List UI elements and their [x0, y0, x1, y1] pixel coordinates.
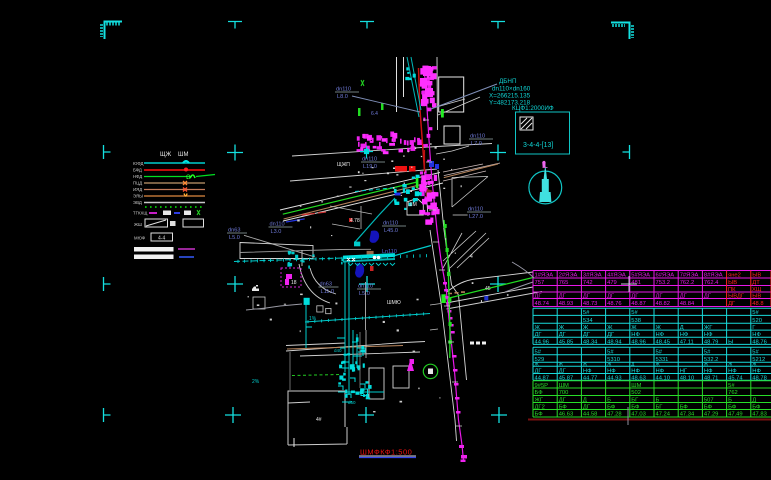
svg-text:2#ЯЭA: 2#ЯЭA [559, 273, 578, 279]
svg-text:18: 18 [291, 280, 297, 286]
svg-text:Ln110: Ln110 [382, 249, 397, 255]
svg-text:3-4-4-[13]: 3-4-4-[13] [523, 142, 553, 149]
svg-text:ДГ: ДГ [559, 332, 567, 338]
svg-text:48.74: 48.74 [535, 301, 550, 307]
svg-text:48.73: 48.73 [583, 301, 598, 307]
svg-text:L5.0: L5.0 [359, 291, 370, 297]
svg-text:Ж: Ж [607, 325, 613, 331]
svg-text:ЭВД: ЭВД [133, 200, 142, 205]
svg-text:762.2: 762.2 [680, 280, 695, 286]
svg-text:БФ: БФ [559, 404, 568, 410]
svg-text:X=266215.135: X=266215.135 [489, 93, 531, 100]
svg-text:4#ЯЭA: 4#ЯЭA [607, 273, 626, 279]
svg-text:48.94: 48.94 [607, 339, 622, 345]
svg-text:ДГ: ДГ [535, 294, 543, 300]
svg-text:НФД: НФД [133, 174, 142, 179]
svg-text:538: 538 [631, 318, 641, 324]
svg-text:НФ: НФ [680, 332, 689, 338]
svg-text:НФ: НФ [656, 369, 665, 375]
svg-text:3#ЯЭA: 3#ЯЭA [583, 273, 602, 279]
svg-text:762: 762 [728, 390, 738, 396]
svg-text:НФ: НФ [704, 332, 713, 338]
svg-text:d40: d40 [334, 348, 342, 353]
svg-text:Б: Б [728, 397, 732, 403]
svg-text:5#: 5# [535, 349, 542, 355]
svg-text:ДГ2: ДГ2 [535, 404, 545, 410]
svg-text:6.4: 6.4 [371, 111, 378, 117]
svg-text:НФ: НФ [752, 369, 761, 375]
svg-text:5#: 5# [607, 349, 614, 355]
svg-text:47.29: 47.29 [704, 412, 719, 418]
svg-text:ШМ: ШМ [408, 202, 417, 208]
svg-text:НФ: НФ [607, 369, 616, 375]
svg-text:ИЯД: ИЯД [133, 187, 142, 192]
svg-text:ДГ: ДГ [559, 369, 567, 375]
svg-text:765: 765 [559, 280, 569, 286]
svg-text:507: 507 [704, 397, 714, 403]
svg-text:2%: 2% [252, 379, 260, 385]
svg-text:479: 479 [607, 280, 617, 286]
svg-text:L3.0: L3.0 [271, 229, 282, 235]
svg-text:яне2: яне2 [728, 273, 741, 279]
svg-text:L8.0: L8.0 [337, 94, 348, 100]
svg-text:КЦФ1:2000ИФ: КЦФ1:2000ИФ [512, 105, 554, 112]
svg-text:762.4: 762.4 [704, 280, 719, 286]
svg-text:Ж: Ж [559, 325, 565, 331]
svg-text:45: 45 [485, 286, 491, 292]
svg-text:ЫВ: ЫВ [752, 273, 761, 279]
svg-text:L19.0: L19.0 [363, 164, 377, 170]
svg-text:НФ: НФ [752, 332, 761, 338]
svg-text:ШМ: ШМ [631, 383, 641, 389]
svg-text:ЩЖ: ЩЖ [160, 152, 172, 158]
svg-text:47.49: 47.49 [728, 412, 743, 418]
svg-text:dn110×dn160: dn110×dn160 [492, 86, 531, 93]
svg-text:48.45: 48.45 [656, 339, 671, 345]
svg-text:ДГ: ДГ [535, 369, 543, 375]
svg-text:ШМФКФ1:500: ШМФКФ1:500 [360, 448, 412, 457]
svg-text:ПЦД: ПЦД [133, 181, 142, 186]
svg-text:742: 742 [583, 280, 593, 286]
svg-text:ДТ: ДТ [752, 280, 760, 286]
svg-text:ЩЖП: ЩЖП [337, 162, 350, 168]
svg-text:НФ: НФ [631, 332, 640, 338]
svg-text:ПК: ПК [728, 287, 736, 293]
svg-text:ШМ: ШМ [178, 152, 189, 158]
svg-text:5#: 5# [631, 310, 638, 316]
svg-text:502: 502 [631, 390, 641, 396]
svg-text:4.78: 4.78 [350, 218, 360, 224]
svg-text:ЖГ: ЖГ [535, 397, 544, 403]
svg-text:48.79: 48.79 [704, 339, 719, 345]
svg-text:9#5P: 9#5P [535, 383, 549, 389]
svg-text:НФ: НФ [583, 369, 592, 375]
svg-text:ЖШ: ЖШ [134, 222, 142, 227]
svg-text:ДГ: ДГ [704, 294, 712, 300]
svg-text:Б: Б [656, 397, 660, 403]
svg-text:Д: Д [752, 397, 756, 403]
svg-text:БФ: БФ [535, 390, 544, 396]
svg-text:ДГ: ДГ [607, 294, 615, 300]
svg-text:4-4: 4-4 [158, 236, 165, 242]
svg-text:45.85: 45.85 [559, 339, 574, 345]
svg-text:L7.0: L7.0 [471, 141, 482, 147]
svg-text:L27.0: L27.0 [469, 214, 483, 220]
svg-text:48.76: 48.76 [752, 339, 767, 345]
svg-text:47.28: 47.28 [607, 412, 622, 418]
svg-text:ДБНП: ДБНП [499, 78, 517, 85]
svg-text:Д: Д [583, 397, 587, 403]
svg-text:4: 4 [470, 254, 473, 260]
svg-text:47.03: 47.03 [631, 412, 646, 418]
svg-text:БФ: БФ [752, 404, 761, 410]
svg-text:481: 481 [631, 280, 641, 286]
svg-text:47.34: 47.34 [680, 412, 695, 418]
svg-text:Ы: Ы [728, 339, 733, 345]
svg-text:ДГ: ДГ [583, 294, 591, 300]
svg-text:L45.0: L45.0 [384, 228, 398, 234]
svg-text:ДГ: ДГ [728, 301, 736, 307]
svg-text:5#: 5# [752, 349, 759, 355]
svg-text:ШМ: ШМ [559, 383, 569, 389]
svg-text:48.82: 48.82 [656, 301, 671, 307]
svg-text:НФ: НФ [728, 369, 737, 375]
svg-text:48.8: 48.8 [752, 301, 763, 307]
svg-text:Ж: Ж [583, 325, 589, 331]
svg-text:БФ: БФ [631, 404, 640, 410]
svg-text:БГ: БГ [631, 397, 639, 403]
svg-text:47.24: 47.24 [656, 412, 671, 418]
svg-text:5#: 5# [704, 349, 711, 355]
svg-text:ЫВ: ЫВ [728, 280, 737, 286]
svg-text:ДГ: ДГ [607, 332, 615, 338]
svg-text:ДГ: ДГ [559, 294, 567, 300]
svg-text:НФ: НФ [656, 332, 665, 338]
svg-text:ДГ: ДГ [559, 397, 567, 403]
svg-text:БФ: БФ [535, 412, 544, 418]
svg-text:753.2: 753.2 [656, 280, 671, 286]
svg-text:6#ЯЭA: 6#ЯЭA [656, 273, 675, 279]
svg-text:Ж: Ж [631, 325, 637, 331]
svg-text:4#: 4# [316, 417, 322, 423]
svg-text:ДГ: ДГ [631, 294, 639, 300]
svg-text:ДГ: ДГ [583, 404, 591, 410]
svg-text:5#: 5# [752, 310, 759, 316]
svg-text:ЭЯЫ: ЭЯЫ [133, 194, 143, 199]
svg-text:L5.0: L5.0 [229, 235, 240, 241]
svg-text:47.11: 47.11 [680, 339, 694, 345]
svg-text:520: 520 [752, 318, 762, 324]
svg-text:1%: 1% [309, 316, 317, 322]
svg-text:d50: d50 [348, 400, 356, 405]
svg-text:НФ: НФ [704, 369, 713, 375]
svg-text:48.87: 48.87 [631, 301, 646, 307]
svg-text:Ж: Ж [535, 325, 541, 331]
svg-text:НГ: НГ [680, 369, 688, 375]
svg-text:5#: 5# [728, 383, 735, 389]
svg-text:44.96: 44.96 [535, 339, 550, 345]
svg-text:Б: Б [607, 397, 611, 403]
svg-text:ДГ: ДГ [583, 332, 591, 338]
svg-text:ХЩ: ХЩ [752, 287, 762, 293]
svg-text:БФД: БФД [133, 168, 142, 173]
svg-text:5#ЯЭA: 5#ЯЭA [631, 273, 650, 279]
svg-text:БФ: БФ [704, 404, 713, 410]
svg-text:1#ЯЭA: 1#ЯЭA [535, 273, 554, 279]
svg-text:ДГ: ДГ [680, 294, 688, 300]
svg-text:БГ: БГ [656, 404, 664, 410]
svg-text:48.93: 48.93 [559, 301, 574, 307]
svg-text:48.34: 48.34 [583, 339, 598, 345]
svg-text:Д: Д [680, 325, 684, 331]
svg-text:ЫВ: ЫВ [752, 294, 761, 300]
svg-text:7#ЯЭA: 7#ЯЭA [680, 273, 699, 279]
svg-text:48.84: 48.84 [680, 301, 695, 307]
svg-text:Д: Д [631, 362, 634, 367]
svg-text:757: 757 [535, 280, 545, 286]
svg-text:8#ЯЭA: 8#ЯЭA [704, 273, 723, 279]
svg-text:5#: 5# [583, 310, 590, 316]
svg-text:ДГ: ДГ [535, 332, 543, 338]
svg-text:ЖГ: ЖГ [704, 325, 713, 331]
svg-text:48.96: 48.96 [631, 339, 646, 345]
svg-text:МЮФ: МЮФ [134, 236, 146, 241]
svg-text:534: 534 [583, 318, 593, 324]
svg-text:БФ: БФ [607, 404, 616, 410]
svg-text:5#: 5# [656, 349, 663, 355]
svg-text:700: 700 [559, 390, 569, 396]
svg-text:44.58: 44.58 [583, 412, 598, 418]
svg-text:БФ: БФ [728, 404, 737, 410]
svg-text:БФ: БФ [680, 404, 689, 410]
svg-text:48.76: 48.76 [607, 301, 622, 307]
svg-text:ЮФД: ЮФД [133, 161, 143, 166]
svg-text:ТГКХЩ: ТГКХЩ [133, 211, 147, 216]
svg-text:47.83: 47.83 [752, 412, 767, 418]
svg-text:Ω: Ω [186, 175, 191, 181]
svg-text:46.63: 46.63 [559, 412, 574, 418]
svg-text:НФ: НФ [631, 369, 640, 375]
svg-text:ДГ: ДГ [656, 294, 664, 300]
svg-text:Ж: Ж [656, 325, 662, 331]
svg-text:ЫВДГ: ЫВДГ [728, 294, 745, 300]
svg-text:L11.0: L11.0 [321, 289, 335, 295]
svg-text:ШМЮ: ШМЮ [387, 300, 401, 306]
